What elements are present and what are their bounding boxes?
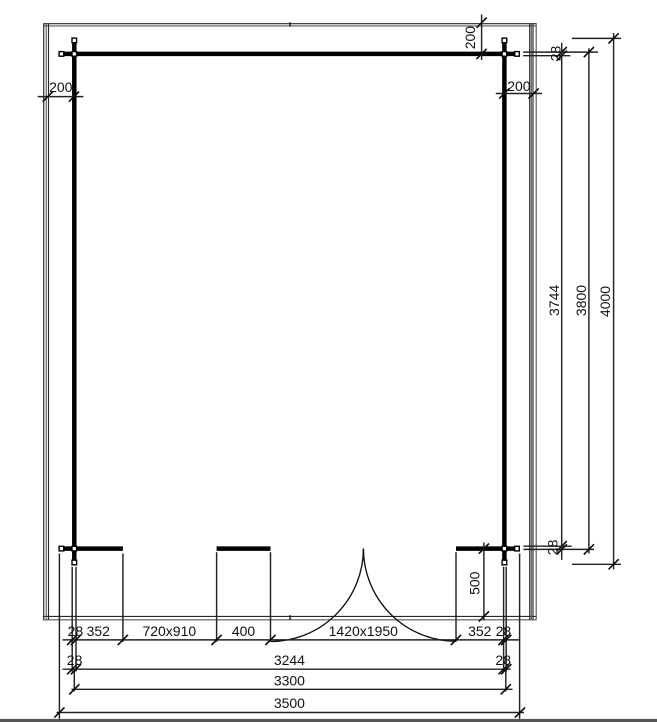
svg-text:28: 28 — [68, 623, 84, 639]
svg-text:3300: 3300 — [274, 672, 305, 688]
svg-text:200: 200 — [462, 26, 478, 50]
svg-text:3244: 3244 — [274, 652, 305, 668]
svg-text:352: 352 — [87, 623, 111, 639]
svg-text:3744: 3744 — [546, 285, 562, 316]
svg-text:3500: 3500 — [274, 695, 305, 711]
svg-text:28: 28 — [544, 539, 560, 555]
svg-text:400: 400 — [232, 623, 256, 639]
svg-text:3800: 3800 — [573, 285, 589, 316]
svg-text:4000: 4000 — [597, 286, 613, 317]
svg-text:200: 200 — [507, 78, 531, 94]
svg-text:500: 500 — [467, 571, 483, 595]
svg-text:28: 28 — [67, 652, 83, 668]
svg-text:720x910: 720x910 — [142, 623, 196, 639]
svg-text:200: 200 — [49, 79, 73, 95]
svg-text:28: 28 — [496, 623, 512, 639]
svg-text:28: 28 — [495, 652, 511, 668]
svg-text:1420x1950: 1420x1950 — [329, 623, 399, 639]
svg-text:352: 352 — [468, 623, 492, 639]
